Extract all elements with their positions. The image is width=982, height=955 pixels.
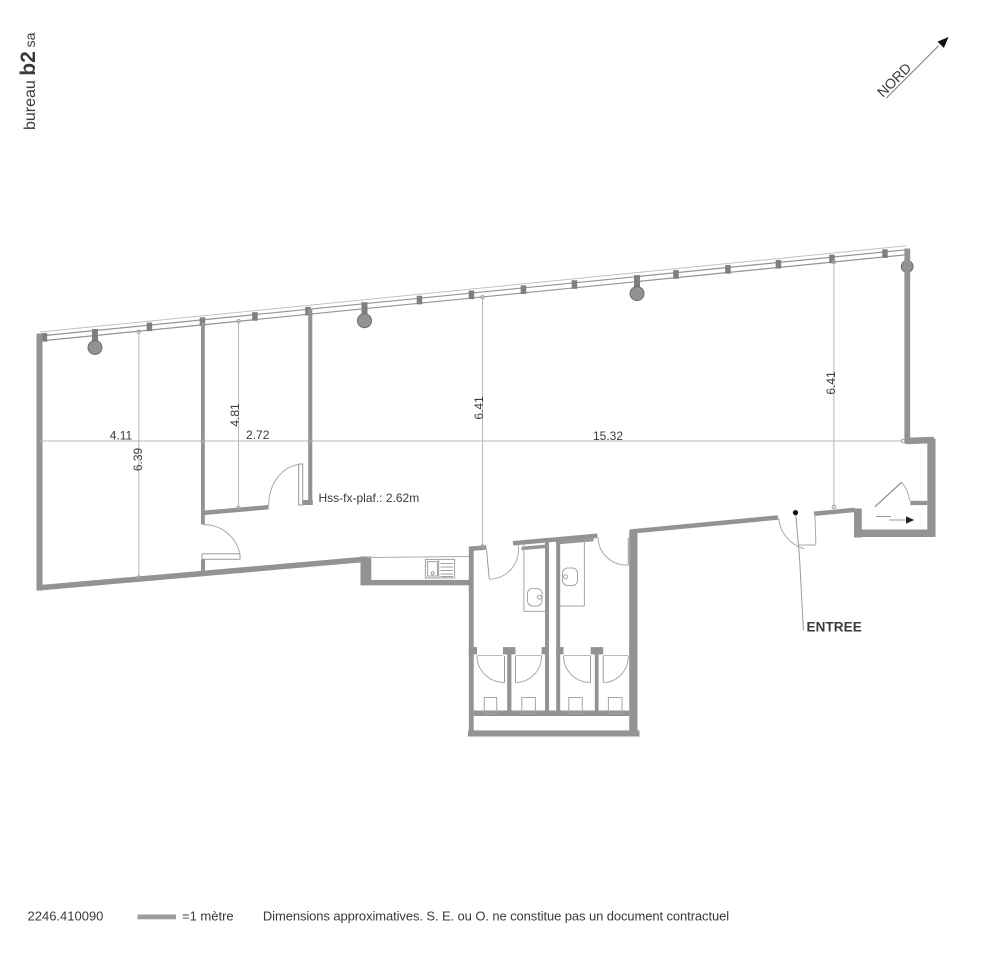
svg-text:ENTREE: ENTREE [807,620,862,635]
svg-text:4.81: 4.81 [228,403,242,427]
svg-text:6.41: 6.41 [824,371,838,395]
svg-text:6.39: 6.39 [131,447,145,471]
svg-text:=1 mètre: =1 mètre [182,909,234,924]
svg-text:2.72: 2.72 [246,428,270,442]
svg-text:Hss-fx-plaf.: 2.62m: Hss-fx-plaf.: 2.62m [319,491,420,505]
svg-text:Dimensions approximatives. S.: Dimensions approximatives. S. E. ou O. n… [263,909,729,924]
svg-text:4.11: 4.11 [110,429,133,443]
svg-text:2246.410090: 2246.410090 [28,909,104,924]
svg-text:15.32: 15.32 [593,429,623,443]
svg-text:6.41: 6.41 [472,396,486,420]
